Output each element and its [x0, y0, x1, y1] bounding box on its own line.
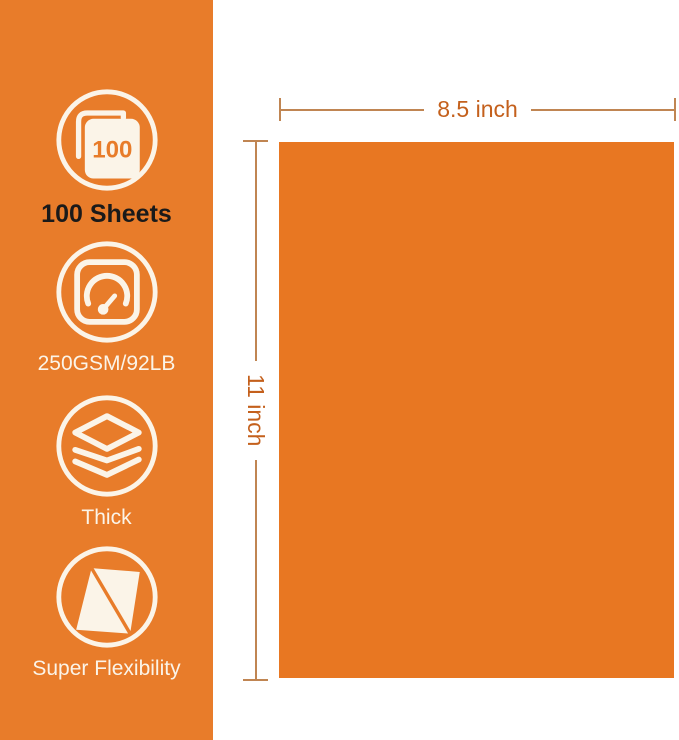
- feature-label: 100 Sheets: [41, 199, 172, 229]
- dimension-line-segment: [255, 460, 257, 679]
- width-dimension-line: 8.5 inch: [279, 98, 676, 121]
- width-dimension-label: 8.5 inch: [424, 96, 531, 123]
- sheet-count-badge: 100: [92, 136, 132, 163]
- dimension-line-segment: [281, 109, 424, 111]
- product-infographic: 100 100 Sheets 250GSM/92LB Thick: [0, 0, 679, 740]
- dimension-tick-bottom: [243, 679, 268, 681]
- height-dimension-line: 11 inch: [243, 140, 268, 681]
- feature-weight: 250GSM/92LB: [0, 239, 213, 376]
- feature-label: Super Flexibility: [32, 656, 180, 681]
- paper-sheet: [279, 142, 674, 678]
- feature-thickness: Thick: [0, 393, 213, 530]
- flexible-sheet-icon: [54, 544, 160, 650]
- feature-label: 250GSM/92LB: [38, 351, 176, 376]
- feature-flexibility: Super Flexibility: [0, 544, 213, 681]
- height-dimension-label: 11 inch: [242, 361, 269, 459]
- layers-icon: [54, 393, 160, 499]
- feature-sheet-count: 100 100 Sheets: [0, 87, 213, 229]
- gauge-icon: [54, 239, 160, 345]
- feature-band: 100 100 Sheets 250GSM/92LB Thick: [0, 0, 213, 740]
- dimension-tick-right: [674, 98, 676, 121]
- dimension-line-segment: [531, 109, 674, 111]
- feature-label: Thick: [81, 505, 131, 530]
- sheets-count-icon: 100: [54, 87, 160, 193]
- dimension-line-segment: [255, 142, 257, 361]
